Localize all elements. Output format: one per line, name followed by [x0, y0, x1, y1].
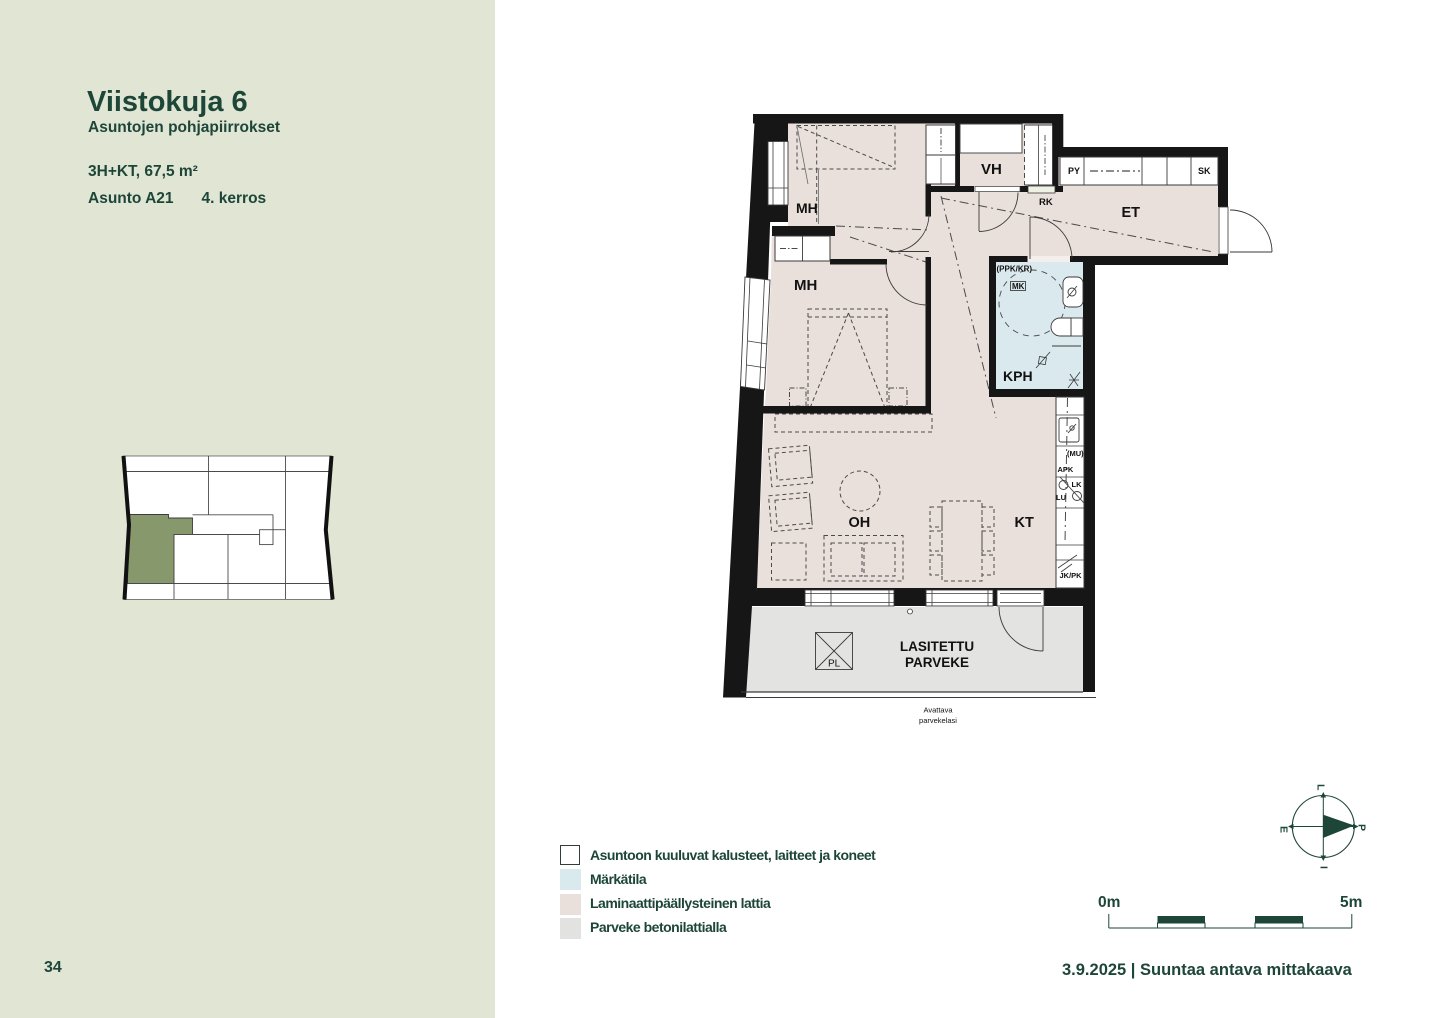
svg-text:ET: ET [1122, 205, 1141, 221]
svg-text:MK: MK [1012, 282, 1025, 291]
svg-text:LU: LU [1056, 493, 1066, 502]
svg-text:KT: KT [1015, 515, 1034, 531]
svg-text:5m: 5m [1340, 894, 1362, 911]
svg-text:PY: PY [1068, 166, 1080, 176]
svg-text:LASITETTU: LASITETTU [900, 639, 974, 654]
svg-text:JK/PK: JK/PK [1060, 571, 1083, 580]
svg-text:MH: MH [796, 200, 818, 216]
svg-text:parvekelasi: parvekelasi [919, 716, 957, 725]
svg-text:KPH: KPH [1003, 368, 1033, 384]
svg-text:PL: PL [828, 659, 841, 670]
svg-text:VH: VH [981, 161, 1002, 178]
svg-text:RK: RK [1039, 197, 1053, 208]
svg-text:LK: LK [1072, 480, 1083, 489]
svg-text:OH: OH [849, 515, 871, 531]
svg-text:E: E [1278, 826, 1290, 833]
svg-text:(MU): (MU) [1067, 449, 1084, 458]
svg-text:Avattava: Avattava [923, 706, 953, 715]
svg-text:PARVEKE: PARVEKE [905, 655, 969, 670]
svg-text:0m: 0m [1098, 894, 1120, 911]
svg-text:P: P [1356, 824, 1368, 831]
svg-text:APK: APK [1058, 465, 1074, 474]
svg-text:SK: SK [1198, 166, 1211, 176]
svg-text:L: L [1315, 784, 1327, 791]
svg-text:I: I [1318, 866, 1330, 869]
svg-text:(PPK/KR): (PPK/KR) [997, 265, 1033, 274]
svg-text:MH: MH [794, 277, 817, 294]
